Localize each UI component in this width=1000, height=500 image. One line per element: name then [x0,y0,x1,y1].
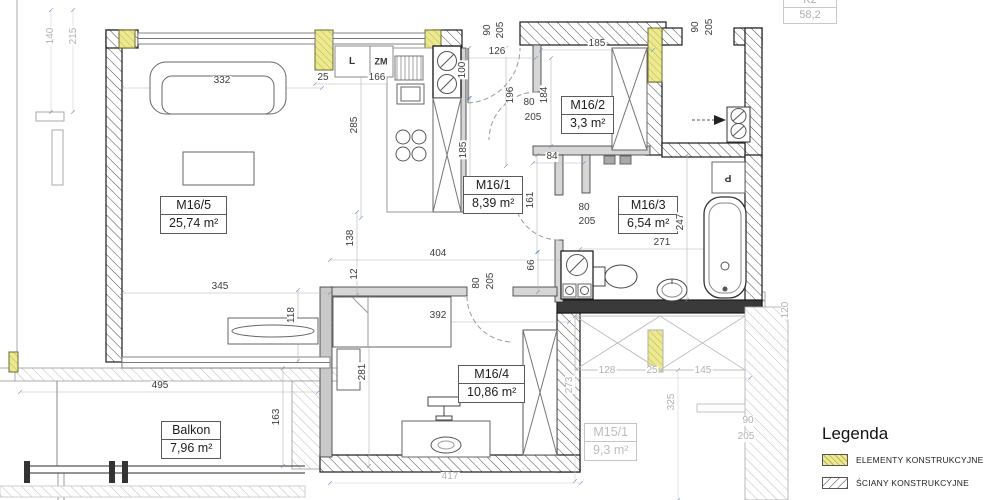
tap [604,156,615,164]
floor-plan: M16/5 25,74 m² M16/1 8,39 m² M16/2 3,3 m… [0,0,1000,500]
neighbor-wall [745,307,788,500]
shaft-arrow [714,115,726,125]
room-label-m16-5: M16/5 25,74 m² [160,196,227,234]
room-label-m16-1: M16/1 8,39 m² [463,176,523,214]
dimension-label: 285 [350,116,360,135]
bathtub [704,197,746,298]
room-area: 8,39 m² [464,194,522,213]
room-label-m16-3: M16/3 6,54 m² [618,196,678,234]
dimension-label: 205 [496,21,506,40]
dimension-label: 138 [346,229,356,248]
dimension-label: 25 [316,73,329,83]
dishwasher-label: ZM [375,58,388,67]
dimension-label: 25 [645,366,658,376]
dimension-label: 495 [151,381,170,391]
dimension-label: 281 [358,363,368,382]
toilet [605,265,637,288]
dimension-label: 205 [737,432,756,442]
dimension-label: 80 [472,276,482,289]
legend: Legenda ELEMENTY KONSTRUKCYJNE ŚCIANY KO… [822,424,997,500]
dimension-label: 205 [578,217,597,227]
dimension-label: 205 [705,18,715,37]
dimension-label: 184 [540,86,550,105]
dimension-label: 392 [429,311,448,321]
dimension-label: 140 [46,27,56,46]
room-area: 25,74 m² [161,214,226,233]
dimension-label: 12 [350,267,360,280]
dimension-label: 332 [213,76,232,86]
dimension-label: 205 [524,113,543,123]
dimension-label: 126 [488,47,507,57]
dimension-label: 80 [577,203,590,213]
legend-item: ELEMENTY KONSTRUKCYJNE [822,454,997,466]
bed [333,297,451,347]
railing-post [109,461,115,483]
room-label-balkon: Balkon 7,96 m² [161,421,221,459]
dimension-label: 84 [545,152,558,162]
yellow-hatch-swatch [822,454,848,466]
room-name: M16/4 [459,366,524,383]
meter-shaft [727,107,750,142]
dimension-label: 90 [741,416,754,426]
room-label-m16-2: M16/2 3,3 m² [561,96,614,134]
room-area: 3,3 m² [562,114,613,133]
bedroom-door-arc [467,296,513,342]
dimension-label: 205 [486,272,496,291]
legend-item-label: ŚCIANY KONSTRUKCYJNE [856,478,969,488]
corner-table-row2: 58,2 [784,7,836,23]
dish-rack [395,56,423,80]
room-area: 10,86 m² [459,383,524,402]
sofa [150,62,286,114]
corner-table-row1: K2 [784,0,836,7]
dimension-label: 271 [653,238,672,248]
room-label-m15-1: M15/1 9,3 m² [584,423,637,461]
dimension-label: 163 [272,408,282,427]
monitor [428,397,460,406]
dimension-label: 345 [211,282,230,292]
dimension-label: 166 [368,73,387,83]
room-name: M16/1 [464,177,522,194]
room-area: 7,96 m² [162,439,220,458]
room-name: M16/2 [562,97,613,114]
room-name: M16/3 [619,197,677,214]
railing-post [122,461,128,483]
dimension-label: 66 [527,258,537,271]
washer-label: P [725,172,732,182]
dimension-label: 80 [522,98,535,108]
railing-post [24,461,30,483]
balcony-railing [25,466,305,473]
dimension-label: 145 [694,366,713,376]
room-label-m16-4: M16/4 10,86 m² [458,365,525,403]
dimension-label: 118 [287,306,297,324]
dining-table [183,152,254,185]
fridge-label: L [349,57,355,67]
desk-chair [431,437,461,453]
tv-cabinet [228,318,318,344]
room-name: Balkon [162,422,220,439]
dimension-label: 196 [506,86,516,105]
room-area: 9,3 m² [585,441,636,460]
dimension-label: 185 [459,141,469,160]
legend-item-label: ELEMENTY KONSTRUKCYJNE [856,455,984,465]
dimension-label: 120 [781,301,791,320]
room-name: M15/1 [585,424,636,441]
dimension-label: 90 [483,23,493,36]
dimension-label: 273 [565,376,575,395]
dimension-label: 185 [588,39,607,49]
room-name: M16/5 [161,197,226,214]
legend-title: Legenda [822,424,997,444]
legend-item: ŚCIANY KONSTRUKCYJNE [822,477,997,489]
dimension-label: 90 [691,20,701,33]
dimension-label: 404 [429,249,448,259]
dimension-label: 247 [676,213,686,232]
dimension-label: 215 [69,27,79,46]
dimension-label: 100 [458,61,468,80]
diagonal-hatch-swatch [822,477,848,489]
tap [620,156,631,164]
room-area: 6,54 m² [619,214,677,233]
toilet-tank [592,267,605,286]
dimension-label: 161 [526,191,536,210]
dimension-label: 417 [441,472,460,482]
corner-table: K2 58,2 [783,0,837,24]
dimension-label: 325 [667,393,677,412]
dimension-label: 128 [598,366,617,376]
